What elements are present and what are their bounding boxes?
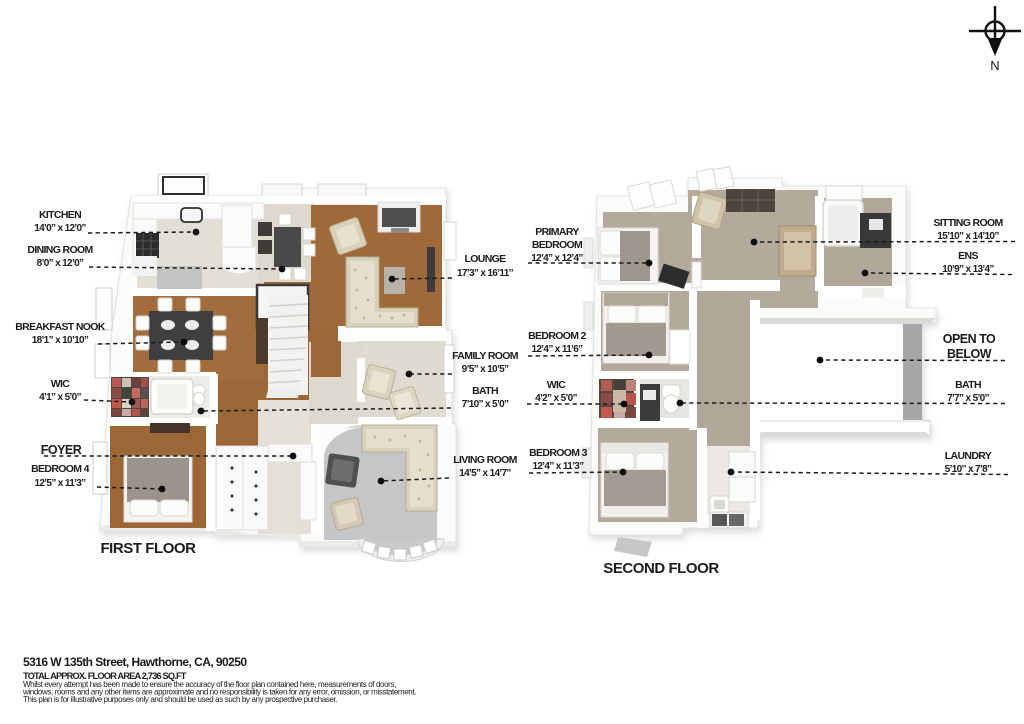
- svg-text:4’2” x 5’0”: 4’2” x 5’0”: [535, 393, 577, 404]
- svg-text:BATH: BATH: [472, 385, 498, 397]
- svg-text:BEDROOM: BEDROOM: [532, 239, 583, 251]
- svg-text:FOYER: FOYER: [41, 443, 82, 457]
- svg-text:BEDROOM 2: BEDROOM 2: [528, 330, 587, 342]
- svg-text:8’0” x 12’0”: 8’0” x 12’0”: [37, 258, 84, 269]
- svg-text:N: N: [990, 58, 999, 73]
- svg-text:BREAKFAST NOOK: BREAKFAST NOOK: [15, 321, 106, 333]
- svg-text:BATH: BATH: [955, 379, 981, 391]
- svg-text:5316 W 135th Street, Hawthorne: 5316 W 135th Street, Hawthorne, CA, 9025…: [23, 655, 247, 669]
- svg-text:WIC: WIC: [51, 378, 71, 390]
- svg-text:BEDROOM 3: BEDROOM 3: [529, 447, 588, 459]
- svg-text:18’1” x 10’10”: 18’1” x 10’10”: [32, 335, 89, 346]
- svg-text:12’4” x 11’6”: 12’4” x 11’6”: [531, 344, 583, 355]
- svg-text:WIC: WIC: [547, 379, 567, 391]
- svg-text:15’10” x 14’10”: 15’10” x 14’10”: [937, 231, 999, 242]
- svg-text:LIVING ROOM: LIVING ROOM: [453, 454, 517, 466]
- svg-text:12’4” x 12’4”: 12’4” x 12’4”: [531, 253, 583, 264]
- svg-text:4’1” x 5’0”: 4’1” x 5’0”: [39, 392, 81, 403]
- svg-text:LOUNGE: LOUNGE: [464, 253, 506, 265]
- svg-text:BEDROOM 4: BEDROOM 4: [31, 463, 90, 475]
- svg-text:9’5” x 10’5”: 9’5” x 10’5”: [462, 364, 509, 375]
- svg-text:7’7” x 5’0”: 7’7” x 5’0”: [947, 393, 989, 404]
- svg-text:FAMILY ROOM: FAMILY ROOM: [452, 350, 519, 362]
- svg-text:14’0” x 12’0”: 14’0” x 12’0”: [34, 223, 86, 234]
- svg-text:OPEN TO: OPEN TO: [943, 332, 996, 346]
- svg-text:FIRST FLOOR: FIRST FLOOR: [100, 540, 196, 557]
- svg-text:7’10” x 5’0”: 7’10” x 5’0”: [462, 399, 509, 410]
- svg-text:5’10” x 7’8”: 5’10” x 7’8”: [945, 464, 992, 475]
- svg-text:PRIMARY: PRIMARY: [535, 226, 579, 238]
- svg-text:12’5” x 11’3”: 12’5” x 11’3”: [34, 478, 86, 489]
- svg-text:10’9” x 13’4”: 10’9” x 13’4”: [942, 264, 994, 275]
- svg-text:SECOND FLOOR: SECOND FLOOR: [603, 560, 719, 577]
- svg-text:KITCHEN: KITCHEN: [39, 209, 81, 221]
- svg-text:BELOW: BELOW: [947, 347, 992, 361]
- svg-text:17’3” x 16’11”: 17’3” x 16’11”: [457, 268, 514, 279]
- svg-text:DINING ROOM: DINING ROOM: [27, 244, 93, 256]
- svg-text:This plan is for illustrative: This plan is for illustrative purposes o…: [23, 695, 337, 704]
- svg-text:ENS: ENS: [958, 250, 978, 262]
- svg-text:12’4” x 11’3”: 12’4” x 11’3”: [532, 461, 584, 472]
- svg-text:LAUNDRY: LAUNDRY: [945, 450, 992, 462]
- svg-text:14’5” x 14’7”: 14’5” x 14’7”: [459, 468, 511, 479]
- svg-text:SITTING ROOM: SITTING ROOM: [933, 217, 1003, 229]
